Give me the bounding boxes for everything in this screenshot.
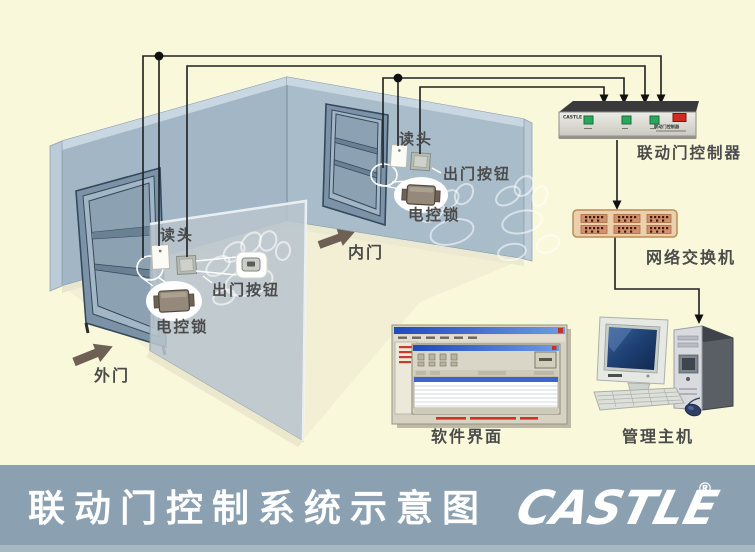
left-wall-end-cap <box>50 141 62 291</box>
inner-lock-device <box>402 185 441 206</box>
door-controller: CASTLE 联动门控制器 <box>559 101 699 139</box>
controller-green-button <box>584 116 593 124</box>
outer-lock-device <box>153 289 194 312</box>
outer-reader-device <box>151 245 169 270</box>
dialog-statusbar <box>414 408 558 414</box>
junction-dot <box>155 52 164 61</box>
outer-reader-label: 读头 <box>160 226 194 244</box>
management-host <box>594 317 733 418</box>
software-window <box>392 325 571 428</box>
bottom-banner: 联动门控制系统示意图 CASTLE ® <box>0 465 755 552</box>
monitor-buttons <box>608 374 622 377</box>
banner-strip <box>0 545 755 552</box>
schematic-canvas: CASTLE 联动门控制器 <box>0 0 755 552</box>
outer-exit-button-label: 出门按钮 <box>212 281 280 299</box>
registered-trademark-icon: ® <box>697 479 713 498</box>
tower-drive-bay <box>678 343 698 347</box>
controller-label: 联动门控制器 <box>637 143 742 162</box>
dialog-close-icon <box>552 346 557 350</box>
host-label: 管理主机 <box>622 427 694 446</box>
dialog-list-header <box>414 377 558 382</box>
switch-label: 网络交换机 <box>646 248 736 267</box>
junction-dot <box>394 74 403 83</box>
controller-green-button <box>650 116 659 124</box>
controller-brand-text: CASTLE <box>563 115 582 121</box>
inner-door-label: 内门 <box>348 243 384 262</box>
window-titlebar <box>394 327 565 334</box>
inner-reader-label: 读头 <box>399 130 433 148</box>
brand-logo: CASTLE <box>511 482 723 536</box>
inner-lock-label: 电控锁 <box>408 205 461 224</box>
dialog-titlebar <box>413 345 559 351</box>
door-foot <box>86 323 88 333</box>
banner-title: 联动门控制系统示意图 <box>28 487 488 530</box>
inner-exit-button-label: 出门按钮 <box>443 165 511 183</box>
tower-power-button <box>686 377 690 381</box>
controller-power-switch <box>673 114 686 122</box>
window-marquee-text <box>436 417 538 420</box>
controller-bottom-strip <box>559 136 696 140</box>
controller-top <box>559 101 699 112</box>
software-label: 软件界面 <box>431 427 503 446</box>
controller-green-button <box>622 116 631 124</box>
controller-panel-text: 联动门控制器 <box>654 123 680 130</box>
outer-lock-label: 电控锁 <box>156 317 209 336</box>
network-switch <box>573 210 677 237</box>
schematic-page: CASTLE 联动门控制器 <box>0 0 755 552</box>
window-close-icon <box>558 328 563 333</box>
tower-drive-bay <box>678 336 698 340</box>
outer-door-label: 外门 <box>93 366 130 385</box>
